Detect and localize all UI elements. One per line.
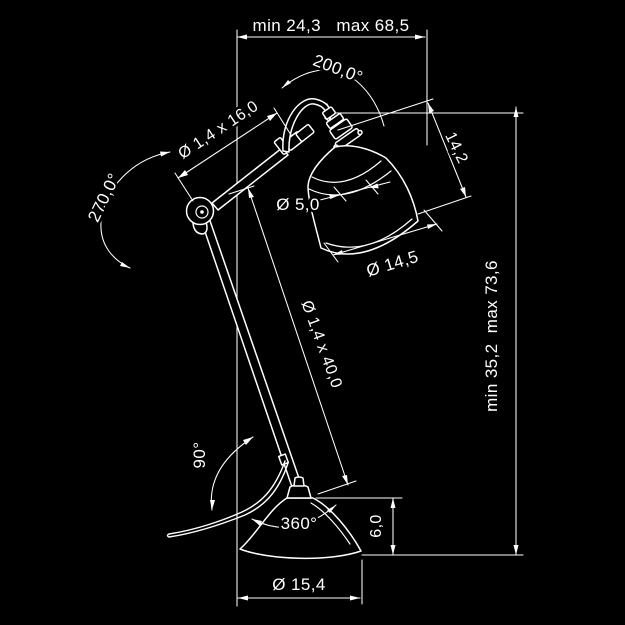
head-rotation-label: 200,0° bbox=[310, 51, 365, 87]
base-height-label: 6,0 bbox=[368, 514, 385, 537]
lamp-dimension-diagram: min 24,3 max 68,5 200,0° Ø 1,4 x 16,0 27… bbox=[0, 0, 625, 625]
elbow-rotation-label: 270,0° bbox=[84, 170, 124, 225]
arm-tilt-arc bbox=[211, 437, 253, 510]
diagram-canvas: min 24,3 max 68,5 200,0° Ø 1,4 x 16,0 27… bbox=[0, 0, 625, 625]
arm-tilt-arrows bbox=[210, 437, 253, 510]
elbow-joint bbox=[187, 198, 214, 225]
base-diameter-label: Ø 15,4 bbox=[272, 575, 325, 594]
neck-diameter-label: Ø 5,0 bbox=[276, 195, 320, 214]
elbow-axle bbox=[200, 210, 204, 214]
shade-bell bbox=[308, 146, 418, 254]
base-hub-neck bbox=[294, 477, 304, 486]
top-width-label: min 24,3 max 68,5 bbox=[253, 16, 410, 35]
base-rotation-label: 360° bbox=[281, 514, 318, 533]
lower-rod-label: Ø 1,4 x 40,0 bbox=[298, 298, 345, 390]
lamp-artwork bbox=[168, 99, 419, 559]
elbow-rotation-arrows bbox=[120, 152, 170, 269]
shade-diameter-label: Ø 14,5 bbox=[364, 247, 421, 281]
head-rotation-arrow bbox=[282, 80, 291, 88]
flange-nub-right bbox=[358, 131, 362, 135]
elbow-rotation-arc bbox=[101, 152, 170, 268]
total-height-label: min 35,2 max 73,6 bbox=[482, 260, 501, 412]
arm-tilt-label: 90° bbox=[190, 442, 209, 469]
lower-arm-rod bbox=[201, 215, 301, 487]
upper-rod-label: Ø 1,4 x 16,0 bbox=[175, 98, 261, 163]
